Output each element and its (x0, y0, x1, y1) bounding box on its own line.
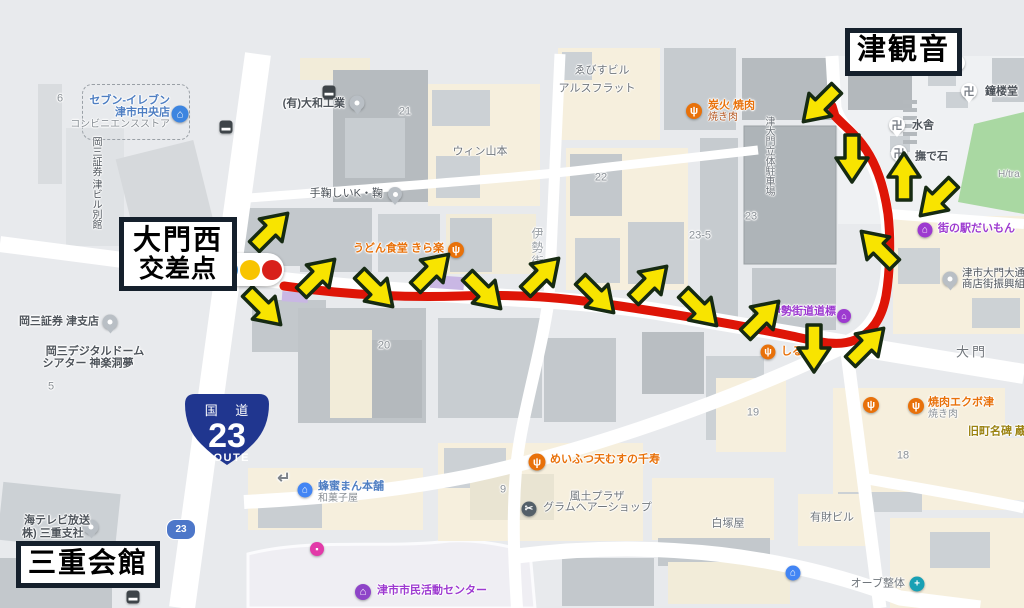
shopping-icon[interactable]: ⌂ (918, 223, 933, 238)
seven-eleven-label[interactable]: セブン-イレブン (89, 96, 170, 107)
lodging-icon[interactable]: ⌂ (786, 566, 801, 581)
tokai-tv-label[interactable]: 海テレビ放送 (24, 516, 90, 527)
plot-number: 6 (57, 94, 63, 105)
shirube-label[interactable]: しるべ (781, 347, 814, 358)
restaurant-icon[interactable]: ψ (761, 345, 776, 360)
kyuchomei-hi-label[interactable]: 旧町名碑 蔵 (968, 427, 1024, 438)
temple-icon[interactable]: 卍 (961, 83, 977, 99)
okasan-dome-theater-label[interactable]: シアター 神楽洞夢 (42, 359, 133, 370)
yuzai-building-label[interactable]: 有財ビル (810, 513, 854, 524)
daimon-nishi-line2: 交差点 (133, 256, 223, 284)
shop-icon[interactable]: ⌂ (298, 483, 313, 498)
plot-number: 18 (897, 451, 909, 462)
bus-stop-icon[interactable]: ▬ (127, 591, 140, 604)
shiratsuka-ya-label[interactable]: 白塚屋 (712, 519, 745, 530)
gram-hair-shop-label[interactable]: グラムヘアーショップ (543, 503, 652, 514)
seven-eleven-label[interactable]: 津市中央店 (115, 108, 170, 119)
restaurant-icon[interactable]: ψ (686, 103, 702, 119)
ise-kaido-street-label[interactable]: 伊勢街道 (531, 227, 543, 283)
traffic-light-lamp-1 (240, 260, 260, 280)
place-pin-icon[interactable] (943, 272, 958, 287)
plot-number: 20 (378, 341, 390, 352)
plot-number: 22 (595, 173, 607, 184)
map-viewport[interactable]: ⌂セブン-イレブン津市中央店コンビニエンスストア岡三証券 津ビル別館岡三証券 津… (0, 0, 1024, 608)
hair-salon-icon[interactable]: ✂ (522, 502, 537, 517)
orb-seitai-label[interactable]: オーブ整体 (851, 579, 905, 590)
temple-icon[interactable]: 卍 (891, 145, 907, 161)
plot-number: 23-5 (689, 231, 711, 242)
mizuya-label[interactable]: 水舎 (912, 121, 934, 132)
plot-number: 9 (500, 485, 506, 496)
shotengai-kumiai-label[interactable]: 津市大門大通り (962, 268, 1024, 279)
shield-number-text: 23 (208, 417, 246, 455)
yakiniku-ekubo-label[interactable]: 焼肉エクボ津 (928, 398, 994, 409)
ebisu-building-label[interactable]: ゑびすビル (575, 66, 630, 77)
restaurant-icon[interactable]: ψ (448, 242, 464, 258)
ise-kaido-dohyo-label[interactable]: 伊勢街道道標 (770, 307, 836, 318)
landmark-icon[interactable]: ⌂ (837, 309, 851, 323)
shield-route-text: ROUTE (204, 452, 250, 464)
turn-arrow-label[interactable]: ↵ (277, 471, 290, 487)
udon-kiraraku-label[interactable]: うどん食堂 きら楽 (353, 244, 444, 255)
tenmusu-senju-label[interactable]: めいふつ天むすの千寿 (550, 455, 660, 466)
h-tra-label[interactable]: H/tra (998, 170, 1020, 180)
poi-layer: ⌂セブン-イレブン津市中央店コンビニエンスストア岡三証券 津ビル別館岡三証券 津… (0, 0, 1024, 608)
place-pin-icon[interactable] (103, 315, 118, 330)
tsu-kannon-callout: 津観音 (845, 28, 962, 76)
plot-number: 19 (747, 408, 759, 419)
restaurant-icon[interactable]: ψ (908, 398, 924, 414)
sumibi-yakiniku-label[interactable]: 炭火 焼肉 (708, 101, 755, 112)
shoro-do-label[interactable]: 鐘楼堂 (985, 87, 1018, 98)
machinoeki-daimon-label[interactable]: 街の駅だいもん (938, 224, 1015, 235)
plot-number: 21 (399, 107, 411, 118)
route-23-shield: 国 道 23 ROUTE (180, 389, 274, 471)
mie-kaikan-callout: 三重会館 (16, 541, 160, 588)
seven-eleven-label[interactable]: コンビニエンスストア (70, 120, 170, 130)
daimon-district-label[interactable]: 大門 (956, 346, 988, 359)
ars-flat-label[interactable]: アルスフラット (559, 84, 636, 95)
sumibi-yakiniku-label[interactable]: 焼き肉 (708, 113, 738, 123)
bus-stop-icon[interactable]: ▬ (220, 121, 233, 134)
hachimitsu-man-label[interactable]: 蜂蜜まん本舗 (318, 482, 384, 493)
okasan-tsu-branch-label[interactable]: 岡三証券 津支店 (19, 317, 99, 328)
massage-icon[interactable]: + (910, 577, 925, 592)
bus-stop-icon[interactable]: ▬ (323, 86, 336, 99)
restaurant-icon[interactable]: ψ (863, 397, 879, 413)
route-23-small-badge: 23 (166, 519, 196, 540)
restaurant-icon[interactable]: ψ (529, 454, 546, 471)
plot-number: 23 (745, 212, 757, 223)
tsu-daimon-parking-label[interactable]: 津大門立体駐車場 (763, 116, 773, 196)
temple-icon[interactable]: 卍 (889, 117, 905, 133)
yakiniku-ekubo-label[interactable]: 焼き肉 (928, 410, 958, 420)
place-pin-icon[interactable] (388, 187, 402, 201)
tokai-tv-label[interactable]: 株) 三重支社 (22, 529, 84, 540)
community-center-icon[interactable]: ⌂ (355, 584, 371, 600)
win-yamamoto-label[interactable]: ウィン山本 (453, 147, 508, 158)
shotengai-kumiai-label[interactable]: 商店街振興組合 (962, 279, 1024, 290)
cinema-icon[interactable]: ▪ (310, 542, 324, 556)
place-pin-icon[interactable] (350, 96, 365, 111)
temari-k-label[interactable]: 手鞠しいK・鞠 (310, 189, 383, 200)
daimon-nishi-callout: 大門西 交差点 (119, 217, 237, 291)
nade-ishi-label[interactable]: 撫で石 (915, 152, 948, 163)
traffic-light-lamp-2 (262, 260, 282, 280)
yamato-kogyo-label[interactable]: (有)大和工業 (283, 99, 345, 110)
convenience-store-icon[interactable]: ⌂ (172, 106, 189, 123)
okasan-dome-theater-label[interactable]: 岡三デジタルドーム (46, 347, 144, 358)
hachimitsu-man-label[interactable]: 和菓子屋 (318, 494, 358, 504)
shield-kokudo-text: 国 道 (205, 403, 256, 418)
plot-number: 5 (48, 382, 54, 393)
daimon-nishi-line1: 大門西 (133, 225, 223, 256)
okasan-annex-label[interactable]: 岡三証券 津ビル別館 (90, 137, 100, 230)
shimin-katsudo-center-label[interactable]: 津市市民活動センター (377, 586, 487, 597)
